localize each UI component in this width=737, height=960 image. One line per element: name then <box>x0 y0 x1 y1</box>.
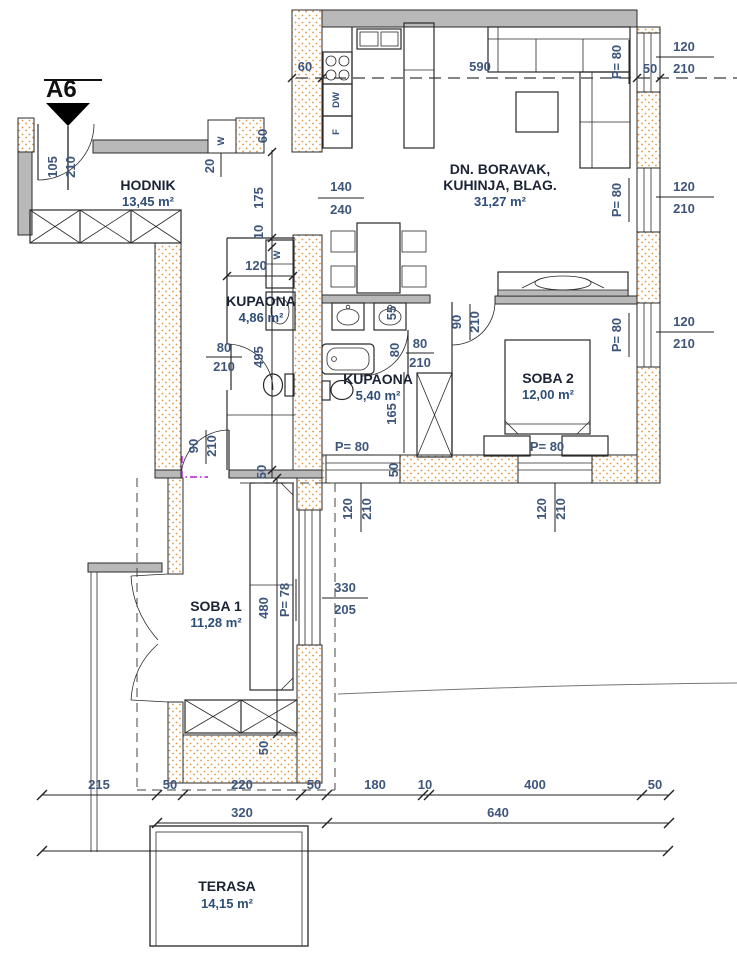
dim-soba1-win-h: 205 <box>334 602 356 617</box>
dim-soba1-door-h: 210 <box>204 435 219 457</box>
svg-text:120: 120 <box>340 498 355 520</box>
dim-soba1-door-w: 90 <box>186 439 201 453</box>
svg-text:215: 215 <box>88 777 110 792</box>
room-bath1-area: 4,86 m² <box>239 310 284 325</box>
dim-soba2-door-w: 90 <box>449 315 464 329</box>
dim-bath2-door-h: 210 <box>409 355 431 370</box>
room-terasa-name: TERASA <box>198 878 256 894</box>
svg-text:10: 10 <box>418 777 432 792</box>
room-bath2-name: KUPAONA <box>343 371 413 387</box>
dim-corridor-175: 175 <box>251 187 266 209</box>
svg-text:220: 220 <box>231 777 253 792</box>
floor-plan-page: W A6 <box>0 0 737 960</box>
dim-bath2-80: 80 <box>387 343 402 357</box>
svg-text:120: 120 <box>673 179 695 194</box>
room-living-name-2: KUHINJA, BLAG. <box>443 177 557 193</box>
entry-niche <box>208 120 236 153</box>
svg-text:210: 210 <box>553 498 568 520</box>
svg-text:640: 640 <box>487 805 509 820</box>
svg-text:210: 210 <box>673 61 695 76</box>
svg-text:120: 120 <box>534 498 549 520</box>
room-soba1-area: 11,28 m² <box>190 615 242 630</box>
dim-gap-10: 10 <box>251 225 266 239</box>
room-terasa-area: 14,15 m² <box>201 896 254 911</box>
dim-win140: 140 <box>330 179 352 194</box>
window-bottom-right <box>518 455 592 483</box>
svg-text:50: 50 <box>307 777 321 792</box>
room-bath1-name: KUPAONA <box>226 293 296 309</box>
dim-bed-sill: P= 78 <box>277 583 292 617</box>
room-living-area: 31,27 m² <box>474 194 527 209</box>
room-soba2-area: 12,00 m² <box>522 387 575 402</box>
dim-bath2-door-w: 80 <box>413 336 427 351</box>
dim-bath1-door-h: 210 <box>213 359 235 374</box>
dim-bath2-165: 165 <box>384 403 399 425</box>
svg-text:120: 120 <box>673 314 695 329</box>
svg-text:P= 80: P= 80 <box>609 45 624 79</box>
svg-text:P= 80: P= 80 <box>609 318 624 352</box>
svg-text:50: 50 <box>163 777 177 792</box>
dim-wall50-soba1-bottom: 50 <box>256 741 271 755</box>
dim-soba1-win-w: 330 <box>334 580 356 595</box>
washer-niche-label: W <box>216 136 227 145</box>
svg-text:P= 80: P= 80 <box>335 439 369 454</box>
dim-wall50-bottom: 50 <box>386 463 401 477</box>
window-soba1 <box>299 510 320 645</box>
dishwasher-label: DW <box>331 92 342 108</box>
room-hodnik-name: HODNIK <box>120 177 175 193</box>
dim-wall50-soba1: 50 <box>254 465 269 479</box>
svg-text:50: 50 <box>648 777 662 792</box>
room-soba1-name: SOBA 1 <box>190 598 242 614</box>
svg-text:400: 400 <box>524 777 546 792</box>
svg-text:210: 210 <box>359 498 374 520</box>
floor-plan-drawing: W A6 <box>0 0 737 960</box>
room-soba2-name: SOBA 2 <box>522 370 574 386</box>
washer-label: W <box>272 250 283 259</box>
dim-wall50-top: 50 <box>643 61 657 76</box>
dim-soba2-door-h: 210 <box>467 311 482 333</box>
window-right-2 <box>637 168 660 232</box>
svg-text:P= 80: P= 80 <box>530 439 564 454</box>
svg-text:210: 210 <box>673 336 695 351</box>
dim-entry-w: 105 <box>45 156 60 178</box>
dim-bath1-door-w: 80 <box>217 340 231 355</box>
svg-text:320: 320 <box>231 805 253 820</box>
dim-win240: 240 <box>330 202 352 217</box>
svg-text:P= 80: P= 80 <box>609 183 624 217</box>
svg-text:180: 180 <box>364 777 386 792</box>
svg-text:120: 120 <box>673 39 695 54</box>
dim-bath1-120: 120 <box>245 258 267 273</box>
dim-opening-60: 60 <box>255 129 270 143</box>
dim-bath2-55: 55 <box>384 306 399 320</box>
room-living-name-1: DN. BORAVAK, <box>450 161 551 177</box>
dim-wall-20: 20 <box>202 159 217 173</box>
fridge-label: F <box>331 129 342 135</box>
dim-soba1-480: 480 <box>256 597 271 619</box>
room-hodnik-area: 13,45 m² <box>122 194 175 209</box>
dim-living-590: 590 <box>469 59 491 74</box>
svg-text:210: 210 <box>673 201 695 216</box>
dim-wall-60: 60 <box>298 59 312 74</box>
room-bath2-area: 5,40 m² <box>356 388 401 403</box>
dim-bath1-495: 495 <box>251 346 266 368</box>
window-right-3 <box>637 303 660 367</box>
dim-entry-h: 210 <box>63 156 78 178</box>
